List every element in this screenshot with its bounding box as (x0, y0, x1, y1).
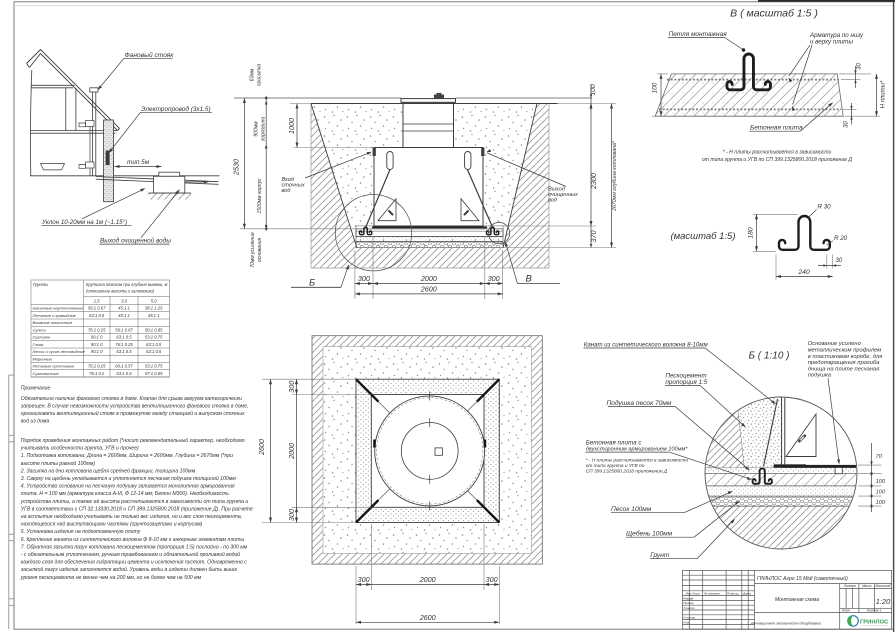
svg-text:ГРИНЛОС: ГРИНЛОС (860, 619, 889, 625)
svg-text:подушка: подушка (808, 373, 832, 379)
svg-text:Т.контр.: Т.контр. (683, 606, 695, 610)
svg-text:Песок 100мм: Песок 100мм (611, 506, 652, 513)
svg-text:5.0: 5.0 (151, 298, 157, 303)
svg-text:4. Устройство основания на пе: 4. Устройство основания на песчаную поду… (21, 483, 235, 490)
svg-text:56:1 0.67: 56:1 0.67 (115, 327, 133, 332)
svg-text:Влажные глинистые: Влажные глинистые (33, 320, 73, 325)
svg-text:76:1 0.25: 76:1 0.25 (115, 342, 133, 347)
svg-text:57:1 0.65: 57:1 0.65 (145, 371, 163, 376)
svg-text:300: 300 (358, 575, 370, 584)
svg-text:от типа грунта и УГВ по СП 399: от типа грунта и УГВ по СП 399.1325800.2… (702, 157, 853, 163)
svg-text:Выход очищенной воды: Выход очищенной воды (100, 237, 171, 245)
svg-text:60мм: 60мм (250, 68, 256, 81)
svg-text:(масштаб 1:5): (масштаб 1:5) (670, 231, 735, 242)
svg-text:Бетонная плита: Бетонная плита (750, 125, 803, 132)
svg-text:Петля монтажная: Петля монтажная (669, 31, 728, 38)
svg-text:Грунты: Грунты (33, 282, 48, 287)
svg-text:днища на плите песчаная: днища на плите песчаная (808, 366, 880, 372)
svg-text:R 30: R 30 (818, 204, 832, 211)
svg-text:от типа грунта и УГВ по: от типа грунта и УГВ по (586, 463, 645, 469)
svg-text:Уклон 10-20мм на 1м (~1.15°): Уклон 10-20мм на 1м (~1.15°) (41, 219, 127, 226)
svg-text:1. Подготовка котлована: Длина: 1. Подготовка котлована: Длина = 2600мм,… (21, 453, 233, 459)
svg-text:Фановый стояк: Фановый стояк (125, 51, 175, 59)
svg-text:900мм: 900мм (254, 121, 260, 137)
svg-text:76:1 0.25: 76:1 0.25 (88, 327, 106, 332)
svg-text:70мм усиление: 70мм усиление (250, 232, 256, 268)
svg-text:- с обязательным уплотнением,: - с обязательным уплотнением, ручным тра… (21, 551, 241, 558)
svg-text:Лист: Лист (841, 609, 851, 613)
svg-text:5. Установка изделия на подгот: 5. Установка изделия на подготовленную п… (21, 529, 141, 535)
svg-text:металлическим профилем: металлическим профилем (808, 348, 882, 354)
svg-text:вод из дома: вод из дома (21, 419, 50, 425)
svg-text:45:1 1: 45:1 1 (148, 313, 160, 318)
svg-text:Провер.: Провер. (683, 601, 694, 605)
svg-text:90:1 0: 90:1 0 (91, 335, 103, 340)
svg-text:53:1 0.75: 53:1 0.75 (145, 335, 163, 340)
svg-text:вод: вод (282, 188, 291, 194)
svg-text:Б: Б (309, 277, 315, 288)
svg-text:пропорция 1:5: пропорция 1:5 (665, 379, 707, 386)
svg-text:Инновационное экологическое об: Инновационное экологическое оборудование (751, 622, 821, 626)
svg-text:засыпкой пазух изделие заполня: засыпкой пазух изделие заполняется водой… (20, 566, 238, 573)
svg-text:Подпись: Подпись (727, 591, 739, 595)
svg-text:вод: вод (548, 198, 557, 204)
svg-text:плита. Н = 100 мм (арматура кл: плита. Н = 100 мм (арматура класса А-III… (21, 491, 229, 497)
svg-text:Б ( 1:10 ): Б ( 1:10 ) (749, 351, 790, 362)
svg-text:Листов 1: Листов 1 (866, 609, 881, 613)
svg-text:50:1 0.85: 50:1 0.85 (145, 327, 163, 332)
svg-text:180: 180 (748, 227, 755, 239)
svg-text:Масштаб: Масштаб (876, 584, 891, 588)
svg-text:300: 300 (287, 509, 296, 521)
svg-text:100: 100 (590, 84, 597, 96)
svg-text:7. Обратная засыпка пазух котл: 7. Обратная засыпка пазух котлована песк… (21, 543, 248, 550)
svg-text:* - Н плиты рассчитывается в з: * - Н плиты рассчитывается в зависимости (723, 150, 832, 156)
svg-text:2000: 2000 (287, 443, 296, 460)
svg-text:Н плиты*: Н плиты* (881, 80, 887, 108)
svg-text:запрещен. В случае невозможнос: запрещен. В случае невозможности устройс… (20, 403, 249, 410)
svg-text:2300: 2300 (589, 173, 598, 190)
svg-text:Утв.: Утв. (683, 620, 690, 624)
svg-text:1.5: 1.5 (94, 298, 100, 303)
svg-text:устройства плиты, а также её в: устройства плиты, а также её высота расс… (20, 498, 249, 505)
svg-text:2600: 2600 (420, 285, 437, 294)
svg-text:высоте плиты равной 100мм): высоте плиты равной 100мм) (21, 460, 96, 467)
svg-text:100: 100 (651, 82, 658, 93)
svg-text:2530: 2530 (232, 159, 241, 176)
svg-text:63:1 0.5: 63:1 0.5 (146, 342, 162, 347)
svg-text:Н.контр.: Н.контр. (683, 616, 696, 620)
svg-text:30: 30 (844, 121, 850, 128)
svg-text:в пластиковом коробе, для: в пластиковом коробе, для (808, 354, 883, 360)
svg-text:100: 100 (876, 479, 886, 485)
svg-text:Подушка песок 70мм: Подушка песок 70мм (607, 399, 672, 407)
svg-text:В ( масштаб 1:5 ): В ( масштаб 1:5 ) (730, 8, 818, 20)
svg-text:Изм.Лист: Изм.Лист (686, 591, 701, 595)
svg-text:63:1 0.5: 63:1 0.5 (89, 313, 105, 318)
svg-text:76:1 0.25: 76:1 0.25 (88, 364, 106, 369)
svg-text:38:1 1.25: 38:1 1.25 (145, 306, 163, 311)
svg-text:100: 100 (876, 490, 886, 496)
svg-text:3.0: 3.0 (121, 298, 127, 303)
svg-text:30: 30 (857, 63, 863, 70)
svg-text:Канат из синтетического волокн: Канат из синтетического волокна 8-10мм (584, 341, 709, 348)
svg-text:63:1 0.5: 63:1 0.5 (116, 349, 132, 354)
svg-text:Суглинистые: Суглинистые (33, 371, 60, 376)
svg-text:2670мм глубина котлована*: 2670мм глубина котлована* (612, 140, 618, 212)
svg-text:Щебень 100мм: Щебень 100мм (626, 530, 673, 538)
svg-text:Масса: Масса (862, 584, 872, 588)
svg-text:90:1 0: 90:1 0 (91, 349, 103, 354)
svg-text:Суглинок: Суглинок (33, 335, 52, 340)
svg-text:Литера: Литера (843, 584, 856, 588)
svg-text:56:1 0.67: 56:1 0.67 (88, 306, 106, 311)
svg-text:Песчаные и гравийные: Песчаные и гравийные (33, 313, 77, 318)
svg-text:СП 399.1325800.2018 приложение: СП 399.1325800.2018 приложение Д (586, 469, 668, 475)
svg-text:53:1 0.75: 53:1 0.75 (145, 364, 163, 369)
svg-text:63:1 0.5: 63:1 0.5 (116, 371, 132, 376)
svg-text:Обязательно наличие фанового с: Обязательно наличие фанового стояка в до… (21, 396, 242, 402)
svg-text:63:1 0.5: 63:1 0.5 (146, 349, 162, 354)
svg-text:300: 300 (486, 575, 498, 584)
svg-text:45:1 1: 45:1 1 (118, 313, 130, 318)
svg-text:370: 370 (589, 231, 598, 243)
svg-text:тип 5м: тип 5м (127, 159, 150, 166)
svg-text:Песчаные супесчаные: Песчаные супесчаные (33, 364, 75, 369)
svg-text:Моренные: Моренные (33, 356, 53, 361)
svg-text:и верху плиты: и верху плиты (810, 39, 853, 46)
svg-text:300: 300 (488, 274, 500, 283)
svg-text:2000: 2000 (419, 575, 436, 584)
svg-text:100: 100 (876, 500, 886, 506)
svg-text:45:1 1: 45:1 1 (118, 306, 130, 311)
svg-text:Бетонная плита с: Бетонная плита с (586, 439, 643, 446)
svg-text:Порядок проведения монтажных р: Порядок проведения монтажных работ (*нос… (21, 437, 245, 444)
svg-text:организовать вентиляционный ст: организовать вентиляционный стояк в пром… (21, 410, 245, 417)
svg-text:Электропровод (3х1.5): Электропровод (3х1.5) (141, 105, 211, 113)
svg-text:1:20: 1:20 (876, 597, 891, 606)
svg-text:3. Сверху на щебень укладывает: 3. Сверху на щебень укладывается и уплот… (21, 475, 236, 482)
svg-text:Крутизна откосов при глубине в: Крутизна откосов при глубине выемки, м (86, 282, 168, 287)
svg-text:240: 240 (797, 269, 810, 276)
svg-text:1500мм корпус: 1500мм корпус (257, 178, 263, 214)
svg-text:Супесь: Супесь (33, 327, 46, 332)
svg-text:учитывать особенности грунта,: учитывать особенности грунта, УГВ и проч… (20, 446, 139, 452)
svg-text:2600: 2600 (257, 439, 266, 456)
svg-text:70: 70 (876, 454, 883, 460)
svg-text:на всплытие необходимо учитыв: на всплытие необходимо учитывать не толь… (21, 514, 242, 520)
svg-text:2600: 2600 (419, 613, 436, 622)
svg-text:R 20: R 20 (834, 235, 848, 242)
svg-text:(отношение высоты к заложению): (отношение высоты к заложению) (86, 289, 155, 294)
svg-text:горловина: горловина (261, 117, 267, 142)
svg-text:УГВ в соответствии с СП 32.133: УГВ в соответствии с СП 32.13330.2018 и … (21, 506, 253, 512)
svg-text:300: 300 (358, 274, 370, 283)
svg-text:1000: 1000 (287, 118, 296, 134)
svg-text:В: В (526, 274, 533, 285)
svg-text:находящегося над выступающими: находящегося над выступающими частями (г… (21, 522, 203, 528)
svg-text:2. Засыпка на дно котлована ще: 2. Засыпка на дно котлована щебня средне… (20, 467, 196, 474)
svg-text:Насыпные неуплотненные: Насыпные неуплотненные (33, 306, 85, 311)
svg-text:Грунт: Грунт (650, 552, 670, 559)
svg-text:присыпка: присыпка (257, 64, 263, 87)
svg-text:Основание усилено: Основание усилено (808, 341, 862, 347)
svg-text:300: 300 (287, 381, 296, 393)
svg-text:6. Крепление каната из синтети: 6. Крепление каната из синтетического во… (21, 537, 245, 543)
svg-text:Лессы и сухие лессовидные: Лессы и сухие лессовидные (32, 349, 86, 354)
svg-text:основания: основания (257, 238, 263, 263)
svg-text:каждого слоя для обеспечения г: каждого слоя для обеспечения гидратации … (21, 560, 247, 566)
svg-text:Монтажная схема: Монтажная схема (775, 597, 819, 603)
svg-text:двухсторонним армированием 100: двухсторонним армированием 100мм* (586, 447, 689, 453)
svg-text:90:1 0: 90:1 0 (91, 342, 103, 347)
svg-text:76:1 0.2: 76:1 0.2 (89, 371, 105, 376)
svg-text:Глина: Глина (33, 342, 45, 347)
svg-text:Дата: Дата (742, 591, 751, 595)
svg-text:30: 30 (836, 258, 843, 264)
svg-text:Примечание: Примечание (21, 386, 51, 392)
svg-text:* - Н плиты рассчитывается в з: * - Н плиты рассчитывается в зависимости (586, 458, 689, 464)
svg-text:ГРИНЛОС Агро 15 Midi (самотечн: ГРИНЛОС Агро 15 Midi (самотечный) (757, 575, 848, 582)
svg-text:уровня пескоцемента не менее ч: уровня пескоцемента не менее чем на 200 … (20, 575, 202, 581)
svg-text:Разраб.: Разраб. (683, 596, 694, 600)
svg-text:60:1 0.57: 60:1 0.57 (115, 364, 133, 369)
svg-text:предотвращения прогиба: предотвращения прогиба (808, 360, 881, 366)
svg-text:63:1 0.5: 63:1 0.5 (116, 335, 132, 340)
svg-text:№ докумен.: № докумен. (704, 591, 721, 595)
svg-text:2000: 2000 (420, 274, 437, 283)
